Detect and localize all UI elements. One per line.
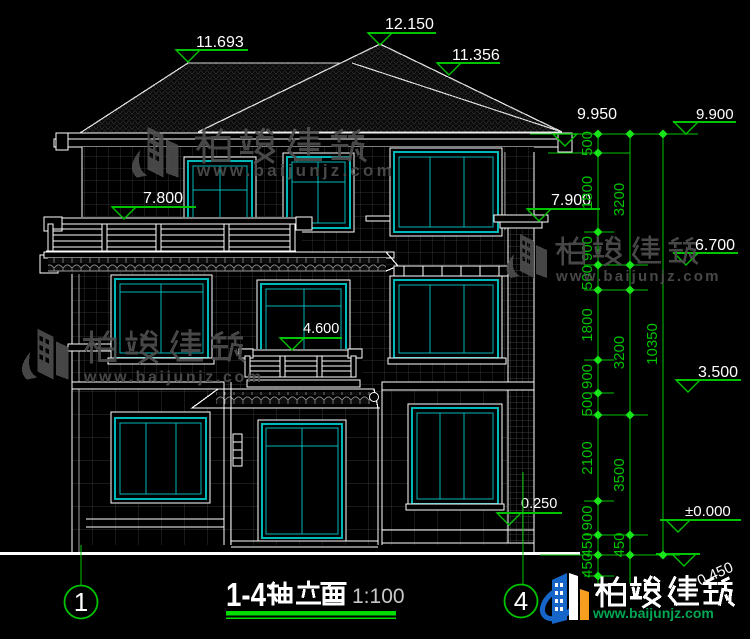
svg-text:3200: 3200: [611, 183, 628, 216]
svg-text:www.baijunjz.com: www.baijunjz.com: [196, 161, 395, 180]
svg-text:6.700: 6.700: [695, 237, 735, 254]
svg-text:10350: 10350: [644, 323, 661, 365]
svg-text:7.800: 7.800: [143, 190, 183, 207]
svg-text:2100: 2100: [579, 441, 596, 474]
svg-text:1: 1: [74, 587, 88, 617]
svg-text:9.900: 9.900: [696, 106, 734, 123]
svg-text:450: 450: [611, 532, 628, 557]
svg-text:www.baijunjz.com: www.baijunjz.com: [592, 605, 714, 621]
svg-text:3500: 3500: [611, 458, 628, 491]
svg-text:9.950: 9.950: [577, 106, 617, 123]
svg-text:4.600: 4.600: [303, 321, 339, 337]
svg-text:450: 450: [579, 553, 596, 578]
svg-text:500: 500: [579, 131, 596, 156]
svg-text:900: 900: [579, 505, 596, 530]
svg-text:1800: 1800: [579, 308, 596, 341]
svg-text:11.693: 11.693: [196, 34, 244, 51]
svg-text:4: 4: [514, 586, 528, 616]
svg-text:12.150: 12.150: [385, 16, 434, 33]
svg-text:0.250: 0.250: [521, 496, 557, 512]
svg-text:www.baijunjz.com: www.baijunjz.com: [83, 369, 264, 386]
svg-text:3.500: 3.500: [698, 364, 738, 381]
svg-text:1800: 1800: [579, 176, 596, 209]
svg-text:±0.000: ±0.000: [685, 503, 731, 520]
svg-text:1-4: 1-4: [226, 576, 267, 613]
svg-text:900: 900: [579, 364, 596, 389]
svg-text:1:100: 1:100: [352, 585, 405, 608]
svg-text:11.356: 11.356: [452, 47, 500, 64]
svg-text:500: 500: [579, 391, 596, 416]
svg-text:www.baijunjz.com: www.baijunjz.com: [555, 268, 721, 285]
svg-text:3200: 3200: [611, 336, 628, 369]
